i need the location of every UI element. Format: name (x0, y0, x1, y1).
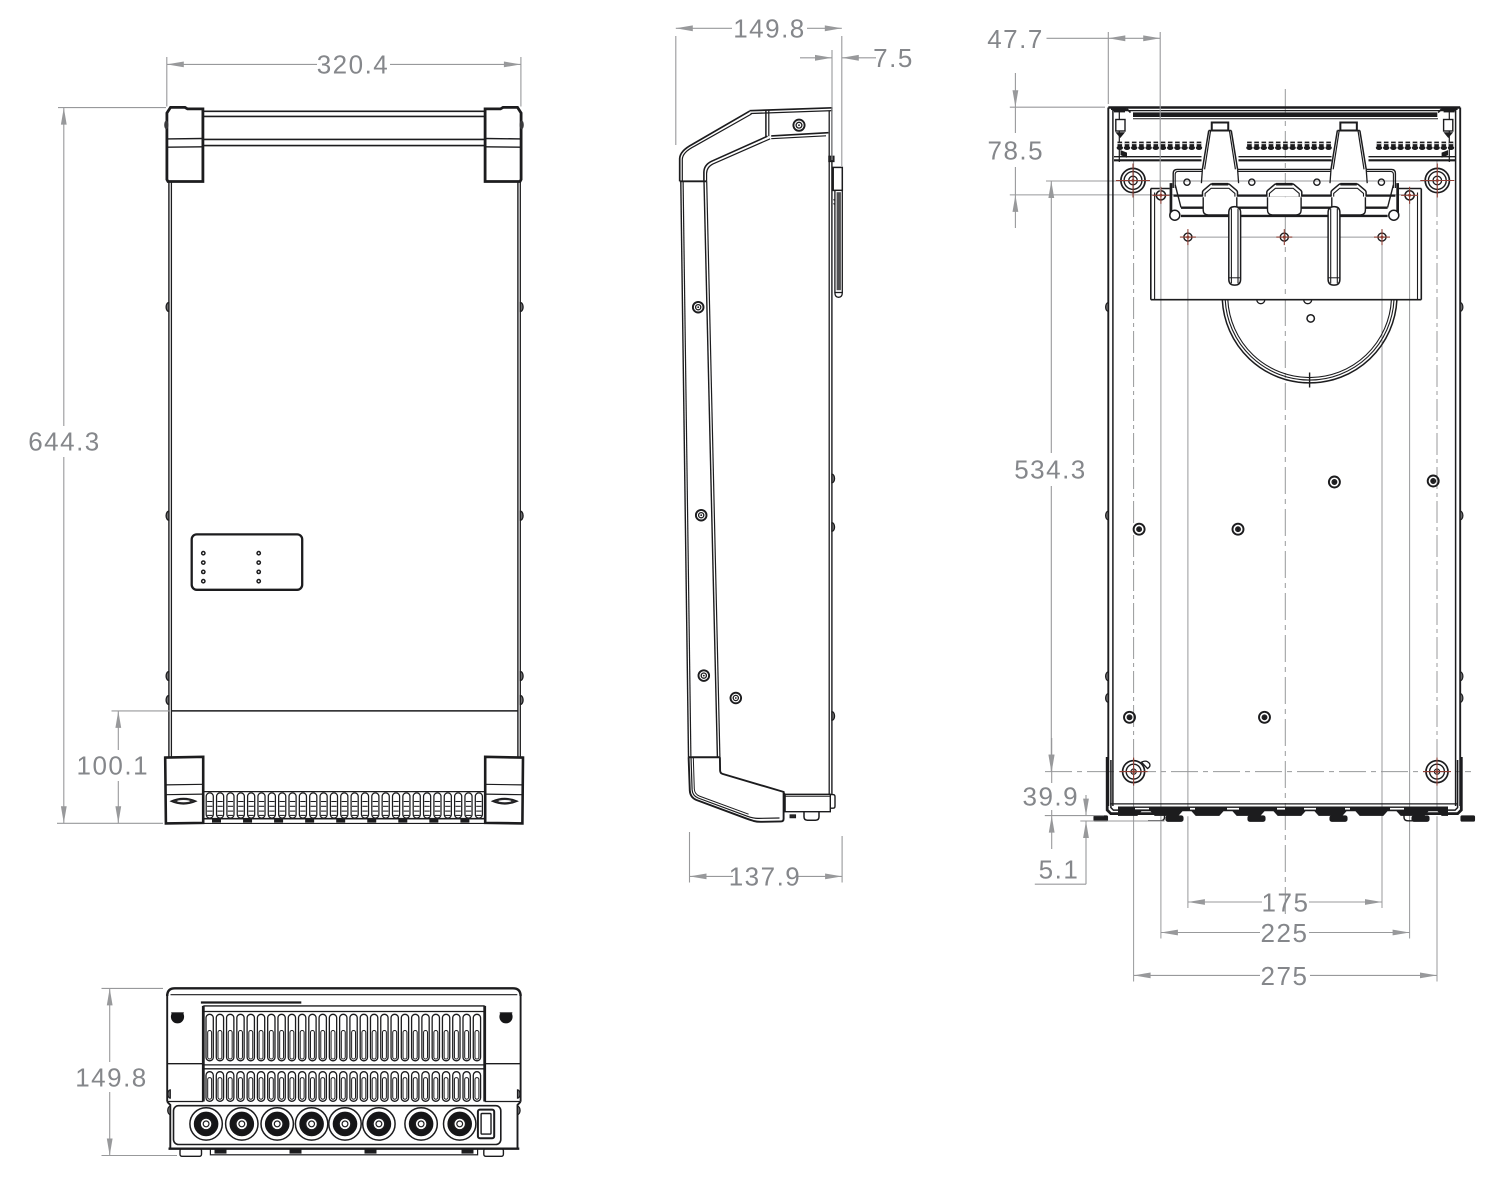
svg-text:100.1: 100.1 (77, 750, 150, 780)
svg-text:5.1: 5.1 (1039, 854, 1080, 884)
svg-text:225: 225 (1261, 918, 1309, 948)
svg-text:149.8: 149.8 (733, 13, 806, 43)
svg-text:78.5: 78.5 (987, 135, 1044, 165)
svg-text:644.3: 644.3 (28, 427, 101, 457)
svg-text:175: 175 (1262, 887, 1310, 917)
svg-text:275: 275 (1261, 961, 1309, 991)
svg-text:137.9: 137.9 (729, 862, 802, 892)
svg-text:149.8: 149.8 (75, 1062, 148, 1092)
svg-text:47.7: 47.7 (987, 24, 1044, 54)
svg-text:320.4: 320.4 (317, 50, 390, 80)
svg-text:39.9: 39.9 (1022, 782, 1079, 812)
svg-text:7.5: 7.5 (873, 43, 914, 73)
svg-text:534.3: 534.3 (1014, 454, 1087, 484)
